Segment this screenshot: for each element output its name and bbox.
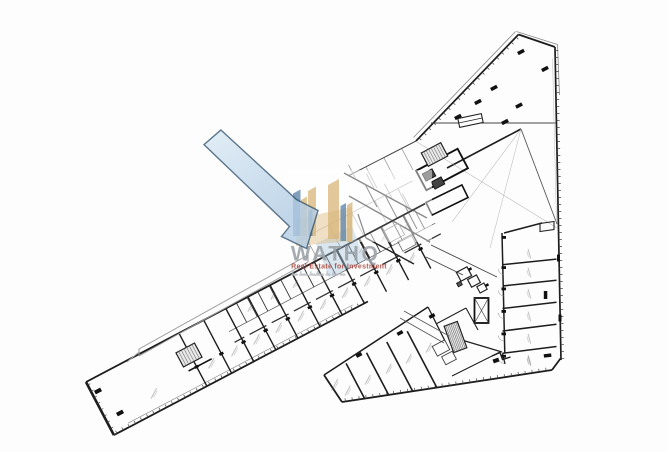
svg-text:Real Estate for Investment: Real Estate for Investment [291,263,387,270]
